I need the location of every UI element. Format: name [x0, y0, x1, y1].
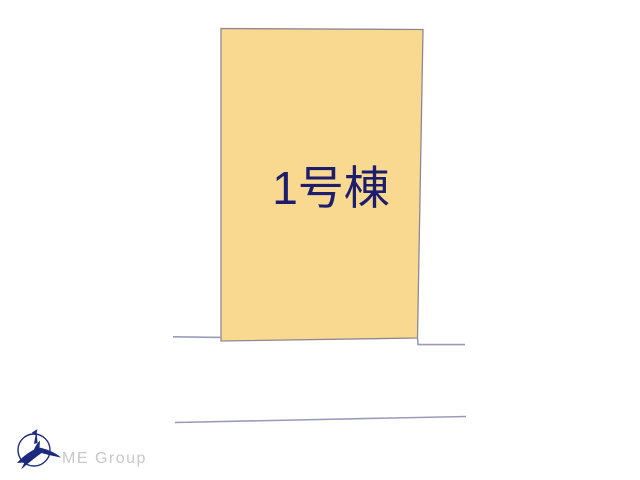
boundary-line-left: [173, 337, 221, 338]
compass-bird-icon: [17, 429, 61, 470]
boundary-step-line-right: [418, 339, 465, 345]
road-edge-line: [175, 417, 466, 423]
logo-company-name: ME Group: [62, 450, 147, 468]
plan-canvas: [0, 0, 640, 480]
site-plan: 1号棟 ME Group: [0, 0, 640, 480]
plot-1-label: 1号棟: [272, 165, 390, 211]
